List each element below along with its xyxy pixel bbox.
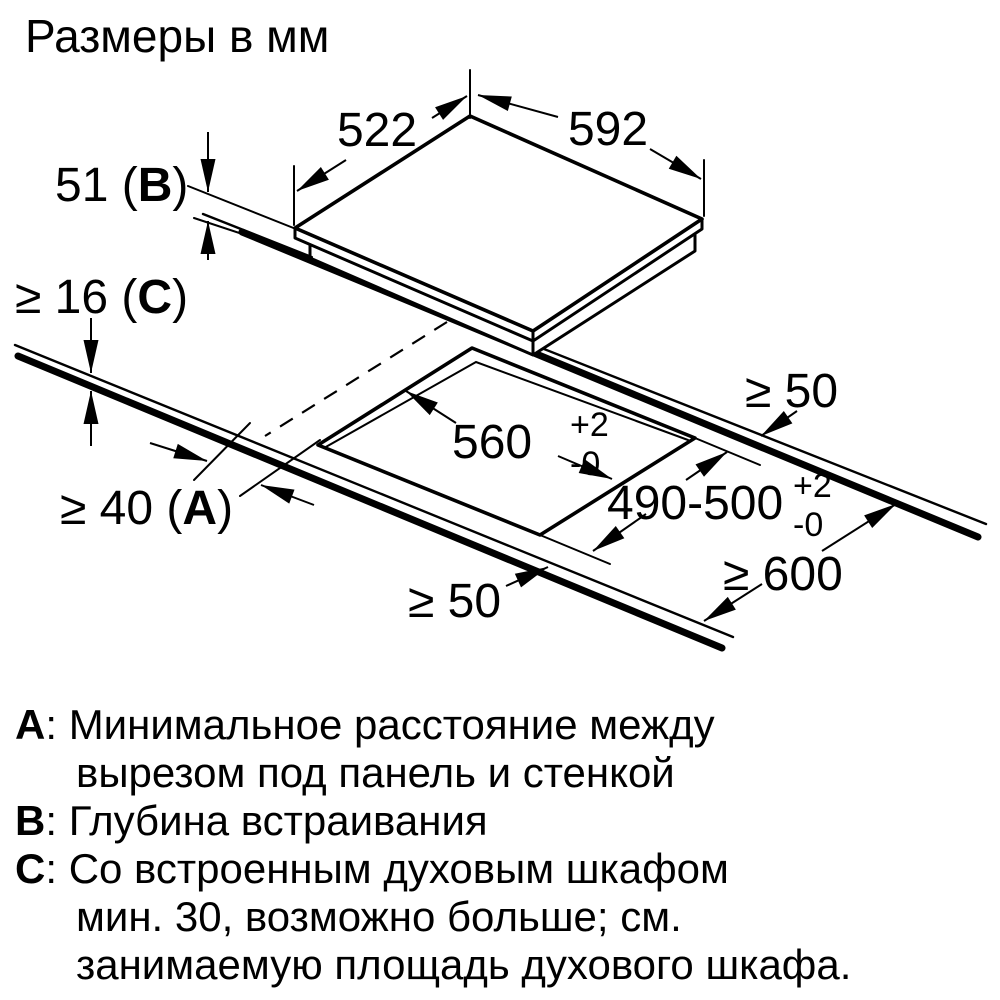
legend: А: Минимальное расстояние между вырезом …	[15, 701, 851, 988]
dim-51-label: 51 (B)	[55, 159, 188, 212]
dim-560-tol-minus: -0	[570, 445, 600, 483]
dim-600-arrow-back	[822, 504, 896, 551]
dim-600-label: ≥ 600	[723, 548, 843, 601]
dim-522-label: 522	[337, 104, 417, 157]
dim-560-label: 560	[452, 416, 532, 469]
legend-item-c-line-2: мин. 30, возможно больше; см.	[76, 893, 682, 940]
cutout-side-ext-line	[240, 440, 320, 496]
legend-item-c-line-1: C: Со встроенным духовым шкафом	[15, 845, 729, 892]
legend-item-a-line-1: А: Минимальное расстояние между	[15, 701, 715, 748]
legend-item-a-line-2: вырезом под панель и стенкой	[76, 749, 675, 796]
thickness-ext-upper	[188, 186, 296, 229]
dim-522-arrow-apex	[432, 96, 467, 118]
dim-16-label: ≥ 16 (C)	[15, 271, 188, 324]
dim-592-arrow-apex	[478, 95, 558, 117]
dimension-drawing: Размеры в мм 522 592 51 (B) ≥ 16 (C) ≥ 4…	[0, 0, 1000, 1000]
dim-560-tol-plus: +2	[570, 406, 609, 444]
dim-522-arrow-left	[297, 160, 346, 191]
dim-592-label: 592	[568, 103, 648, 156]
legend-item-c-line-3: занимаемую площадь духового шкафа.	[76, 941, 851, 988]
dim-40-arrow-right	[261, 485, 314, 505]
dim-490-arrow-upper	[686, 452, 727, 480]
page-title: Размеры в мм	[25, 10, 329, 62]
dim-490-tol-plus: +2	[793, 467, 832, 505]
dim-50-back-label: ≥ 50	[745, 365, 838, 418]
dim-592-arrow-right	[650, 149, 701, 179]
dim-40-label: ≥ 40 (A)	[60, 482, 233, 535]
dim-490-label: 490-500	[607, 477, 783, 530]
dim-40-arrow-left	[150, 443, 207, 461]
legend-item-b-line-1: B: Глубина встраивания	[15, 797, 488, 844]
installation-diagram-page: Размеры в мм 522 592 51 (B) ≥ 16 (C) ≥ 4…	[0, 0, 1000, 1000]
dim-490-tol-minus: -0	[793, 506, 823, 544]
cutout-bottom-ext-line	[540, 535, 610, 564]
dim-50-front-label: ≥ 50	[408, 575, 501, 628]
